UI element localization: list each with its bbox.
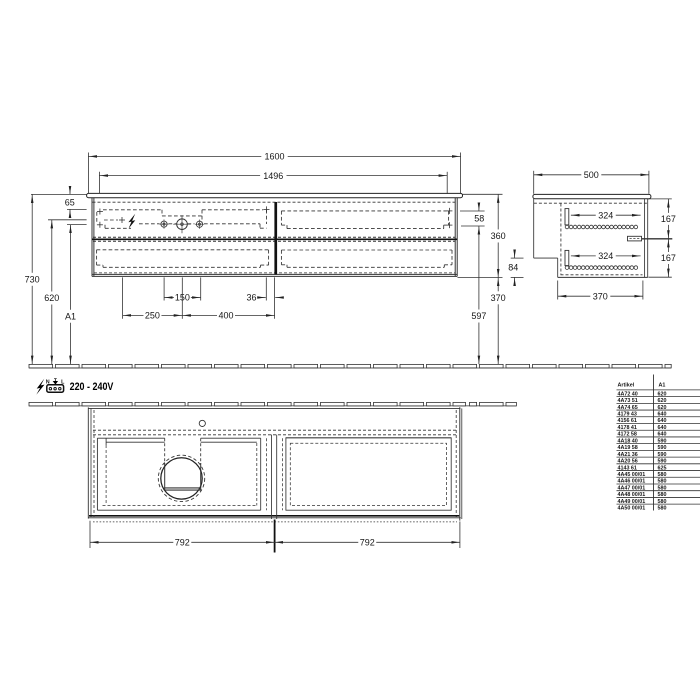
svg-text:4A19 58: 4A19 58 [618,445,638,451]
svg-text:360: 360 [491,231,506,241]
svg-text:4A49 00/01: 4A49 00/01 [618,499,646,505]
svg-text:324: 324 [598,251,613,261]
svg-text:640: 640 [658,432,667,438]
svg-text:580: 580 [658,479,667,485]
svg-text:580: 580 [658,472,667,478]
svg-text:792: 792 [360,538,375,548]
svg-text:640: 640 [658,418,667,424]
svg-text:640: 640 [658,412,667,418]
svg-text:A1: A1 [65,311,76,321]
svg-text:620: 620 [658,391,667,397]
svg-text:36: 36 [246,293,256,303]
svg-text:590: 590 [658,459,667,465]
svg-text:625: 625 [658,465,667,471]
svg-text:580: 580 [658,499,667,505]
svg-text:620: 620 [44,293,59,303]
svg-text:A1: A1 [659,382,666,388]
svg-text:4A18 40: 4A18 40 [618,438,638,444]
svg-text:620: 620 [658,398,667,404]
svg-text:220 - 240V: 220 - 240V [70,381,114,393]
svg-text:500: 500 [584,170,599,180]
svg-text:65: 65 [65,198,75,208]
svg-text:370: 370 [593,291,608,301]
svg-text:4A72 40: 4A72 40 [618,391,638,397]
svg-text:1600: 1600 [264,152,284,162]
svg-text:4156 61: 4156 61 [618,418,637,424]
svg-text:4A20 56: 4A20 56 [618,459,638,465]
svg-text:4A21 36: 4A21 36 [618,452,638,458]
svg-text:324: 324 [598,210,613,220]
svg-text:167: 167 [661,253,676,263]
svg-text:4A50 00/01: 4A50 00/01 [618,506,646,512]
svg-text:4172 58: 4172 58 [618,432,637,438]
svg-text:370: 370 [491,293,506,303]
svg-text:Artikel: Artikel [618,382,635,388]
svg-text:4A73 51: 4A73 51 [618,398,638,404]
svg-text:4178 41: 4178 41 [618,425,637,431]
svg-text:1496: 1496 [263,171,283,181]
svg-text:4A46 00/01: 4A46 00/01 [618,479,646,485]
svg-text:167: 167 [661,214,676,224]
svg-text:400: 400 [218,311,233,321]
svg-text:58: 58 [474,214,484,224]
svg-text:730: 730 [25,275,40,285]
svg-text:597: 597 [471,311,486,321]
svg-text:580: 580 [658,485,667,491]
svg-text:792: 792 [175,538,190,548]
svg-text:640: 640 [658,425,667,431]
svg-text:N: N [46,380,50,386]
svg-text:620: 620 [658,405,667,411]
svg-text:4143 61: 4143 61 [618,465,637,471]
svg-text:4A74 65: 4A74 65 [618,405,638,411]
svg-text:L: L [61,380,65,386]
svg-text:250: 250 [145,311,160,321]
svg-text:4A45 00/01: 4A45 00/01 [618,472,646,478]
svg-text:4179 43: 4179 43 [618,412,637,418]
svg-text:580: 580 [658,492,667,498]
svg-text:4A48 00/01: 4A48 00/01 [618,492,646,498]
svg-text:580: 580 [658,506,667,512]
svg-text:590: 590 [658,438,667,444]
svg-text:590: 590 [658,452,667,458]
svg-text:590: 590 [658,445,667,451]
svg-text:4A47 00/01: 4A47 00/01 [618,485,646,491]
svg-text:84: 84 [508,263,518,273]
